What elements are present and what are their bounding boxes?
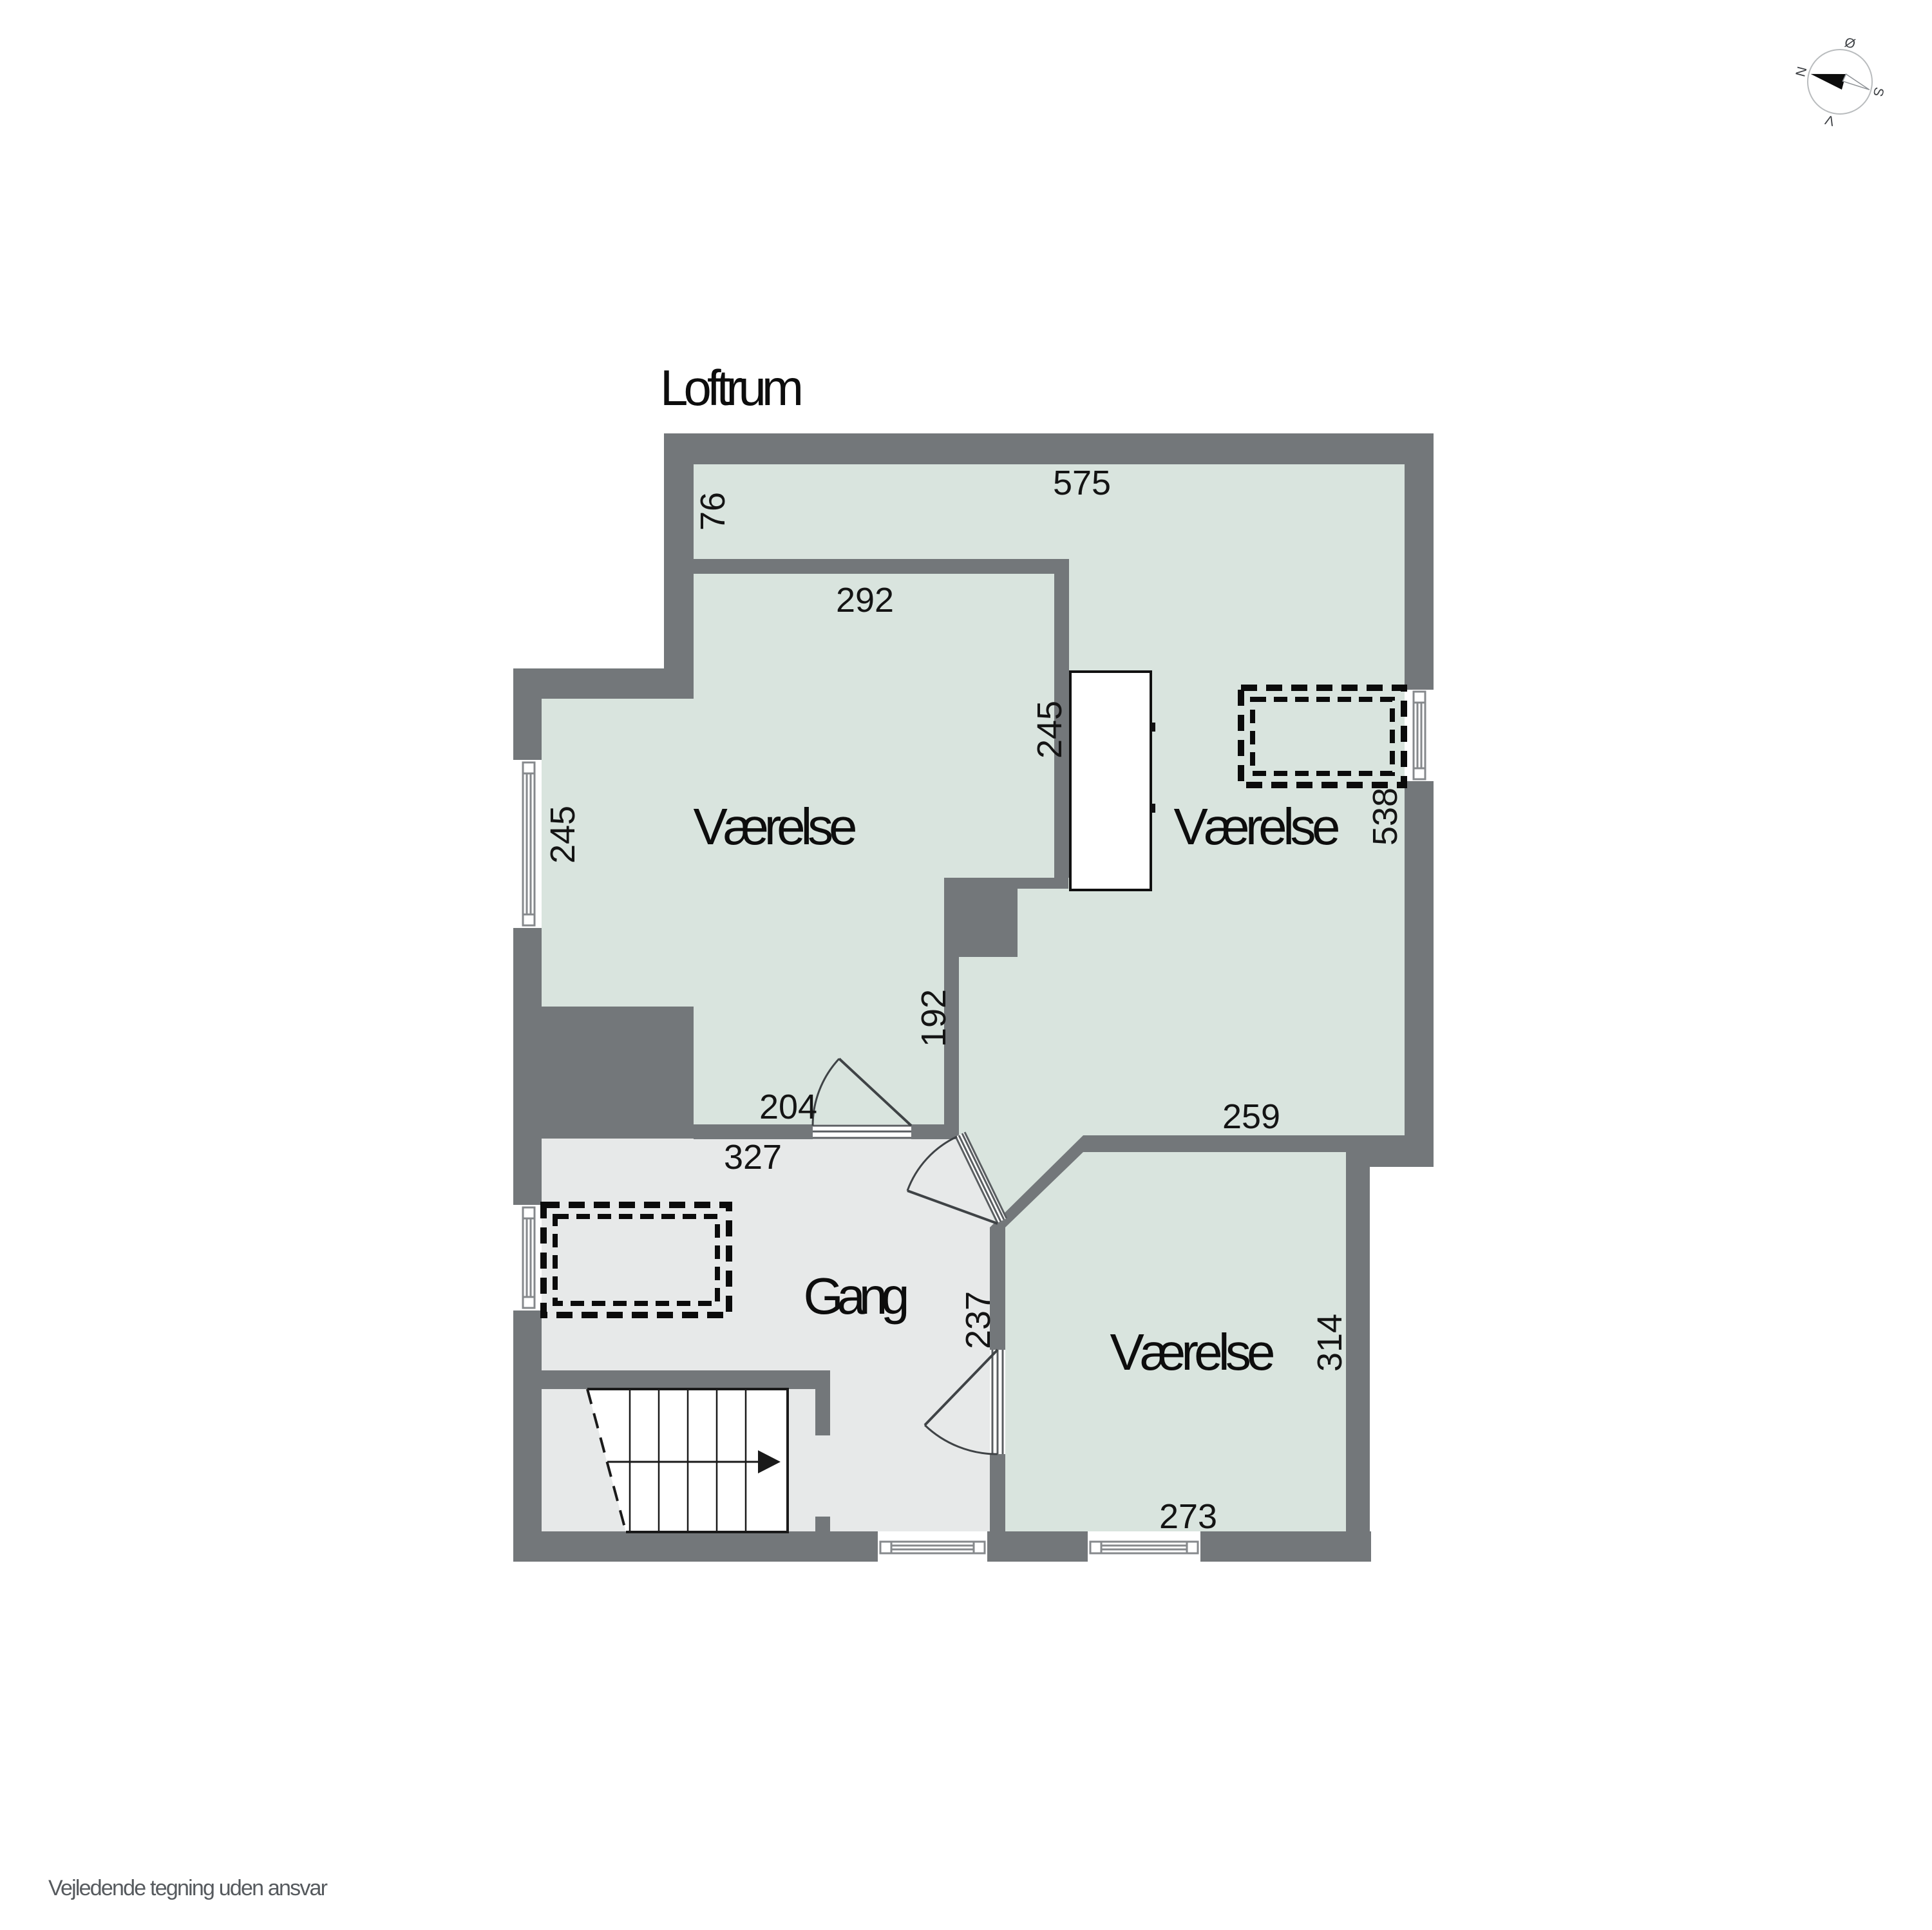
svg-text:Vejledende tegning uden ansvar: Vejledende tegning uden ansvar	[48, 1876, 328, 1900]
svg-text:Værelse: Værelse	[1174, 798, 1341, 855]
svg-text:204: 204	[759, 1088, 817, 1126]
svg-text:76: 76	[694, 492, 732, 531]
svg-text:292: 292	[836, 581, 894, 620]
svg-text:237: 237	[959, 1291, 998, 1349]
svg-text:245: 245	[1030, 701, 1069, 759]
svg-text:Værelse: Værelse	[694, 798, 858, 855]
svg-text:327: 327	[724, 1138, 782, 1177]
svg-text:259: 259	[1222, 1097, 1280, 1136]
svg-text:314: 314	[1311, 1314, 1349, 1372]
svg-text:575: 575	[1053, 464, 1111, 502]
svg-text:273: 273	[1159, 1497, 1217, 1536]
svg-text:Gang: Gang	[804, 1267, 910, 1325]
svg-text:538: 538	[1366, 788, 1405, 846]
svg-text:192: 192	[914, 989, 953, 1047]
svg-text:Loftrum: Loftrum	[660, 359, 804, 416]
svg-text:Værelse: Værelse	[1110, 1323, 1276, 1381]
svg-text:245: 245	[544, 806, 582, 864]
